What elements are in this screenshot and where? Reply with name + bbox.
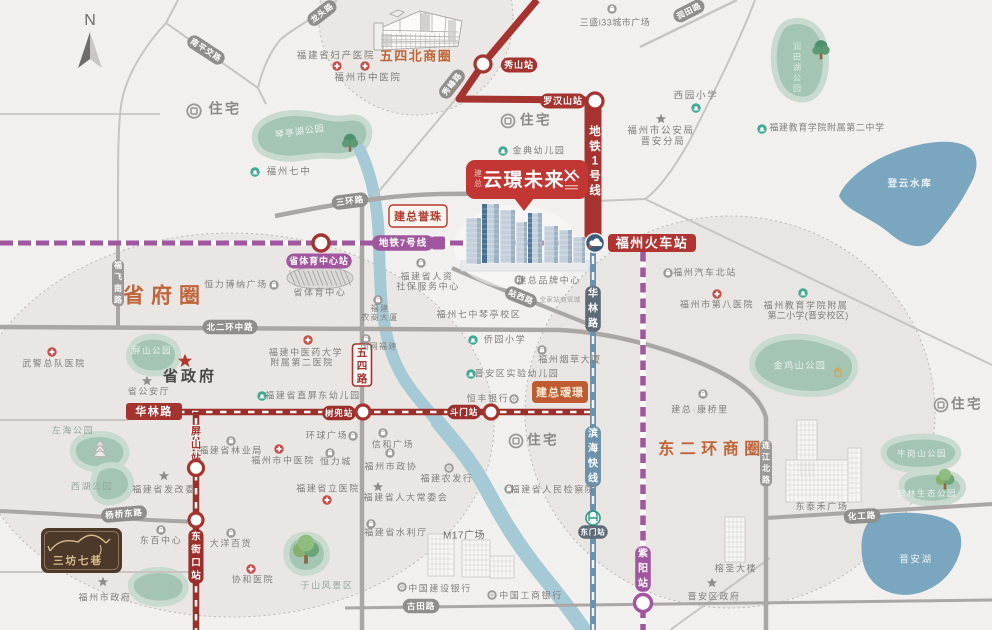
svg-text:中国建设银行: 中国建设银行 (408, 582, 472, 593)
svg-text:华林路: 华林路 (135, 404, 173, 418)
svg-text:福州七中琴亭校区: 福州七中琴亭校区 (437, 308, 522, 319)
svg-text:全家站商贸城: 全家站商贸城 (540, 295, 581, 304)
svg-text:省府圈: 省府圈 (122, 284, 207, 308)
svg-text:路: 路 (588, 317, 599, 330)
svg-text:福建省人大常委会: 福建省人大常委会 (364, 491, 449, 502)
svg-text:省体育中心站: 省体育中心站 (288, 255, 348, 266)
svg-text:西园小学: 西园小学 (674, 90, 719, 102)
svg-text:福建省水利厅: 福建省水利厅 (364, 526, 428, 537)
svg-text:第二小学(晋安校区): 第二小学(晋安校区) (768, 309, 849, 320)
svg-text:侨园小学: 侨园小学 (484, 333, 526, 344)
svg-text:华: 华 (588, 287, 598, 300)
svg-text:恒力博纳广场: 恒力博纳广场 (204, 278, 268, 289)
svg-text:路: 路 (762, 475, 771, 485)
svg-text:N: N (84, 12, 96, 29)
svg-text:福建省人资: 福建省人资 (400, 270, 453, 281)
svg-text:省公安厅: 省公安厅 (128, 385, 170, 396)
svg-text:树兜站: 树兜站 (325, 408, 353, 418)
svg-text:福建省林业局: 福建省林业局 (199, 444, 263, 455)
svg-text:北二环中路: 北二环中路 (206, 322, 253, 332)
svg-text:建总叆璟: 建总叆璟 (536, 385, 584, 399)
svg-text:润: 润 (793, 41, 801, 51)
svg-text:线: 线 (588, 472, 598, 485)
svg-text:建总·康桥里: 建总·康桥里 (671, 403, 729, 414)
svg-text:M17广场: M17广场 (443, 529, 485, 542)
svg-text:乌山历史风貌区: 乌山历史风貌区 (134, 583, 182, 592)
svg-text:福建省立医院: 福建省立医院 (296, 482, 360, 493)
svg-text:金典幼儿园: 金典幼儿园 (512, 144, 565, 155)
svg-text:公: 公 (793, 74, 801, 83)
svg-text:武警总队医院: 武警总队医院 (22, 357, 86, 368)
svg-text:大洋百货: 大洋百货 (210, 537, 252, 548)
svg-text:建: 建 (474, 168, 482, 178)
svg-text:园: 园 (793, 84, 801, 93)
svg-text:东: 东 (191, 531, 201, 543)
svg-text:住宅: 住宅 (527, 432, 559, 448)
svg-text:福州市公安局: 福州市公安局 (627, 125, 694, 137)
svg-text:环球广场: 环球广场 (306, 429, 348, 440)
svg-text:住宅: 住宅 (209, 101, 242, 117)
svg-text:恒力城: 恒力城 (320, 455, 352, 466)
svg-text:四: 四 (357, 360, 368, 372)
svg-text:牛岗山公园: 牛岗山公园 (897, 448, 947, 458)
svg-text:站: 站 (191, 570, 201, 582)
svg-text:南: 南 (114, 283, 122, 293)
svg-text:金鸡山公园: 金鸡山公园 (773, 359, 826, 370)
svg-text:田: 田 (793, 53, 801, 62)
svg-text:晋安区政府: 晋安区政府 (687, 590, 740, 601)
svg-text:晋安分局: 晋安分局 (641, 136, 686, 148)
svg-text:路: 路 (357, 372, 368, 385)
svg-text:福建省发改委: 福建省发改委 (132, 483, 196, 494)
svg-text:飞: 飞 (114, 273, 122, 282)
svg-text:快: 快 (587, 457, 599, 470)
svg-text:阳: 阳 (638, 563, 648, 575)
svg-text:罗汉山站: 罗汉山站 (543, 95, 583, 106)
svg-text:福州市第八医院: 福州市第八医院 (680, 298, 754, 309)
svg-text:林: 林 (588, 302, 599, 315)
svg-text:总: 总 (474, 178, 482, 188)
svg-text:北: 北 (762, 463, 770, 473)
svg-text:福州七中: 福州七中 (267, 166, 312, 178)
svg-text:晋安湖: 晋安湖 (899, 554, 933, 566)
svg-text:附属第二医院: 附属第二医院 (270, 356, 334, 367)
svg-text:秀山站: 秀山站 (503, 59, 534, 70)
svg-text:福州市政协: 福州市政协 (364, 460, 417, 471)
svg-text:福州汽车北站: 福州汽车北站 (673, 266, 737, 277)
svg-text:街: 街 (190, 544, 201, 556)
svg-text:福州火车站: 福州火车站 (615, 235, 689, 250)
svg-text:斗门站: 斗门站 (450, 407, 478, 417)
svg-text:福建省妇产医院: 福建省妇产医院 (297, 50, 375, 62)
svg-text:地铁7号线: 地铁7号线 (379, 237, 427, 249)
svg-text:地: 地 (589, 124, 601, 138)
svg-text:榕圣大楼: 榕圣大楼 (715, 562, 757, 573)
svg-text:福建省人民检察院: 福建省人民检察院 (511, 483, 596, 494)
svg-text:铁: 铁 (589, 139, 601, 153)
svg-text:路: 路 (114, 295, 123, 305)
svg-text:1: 1 (592, 156, 599, 168)
svg-text:国网福建: 国网福建 (360, 341, 398, 351)
svg-text:于山风景区: 于山风景区 (300, 580, 353, 590)
svg-text:屏: 屏 (190, 426, 201, 438)
svg-text:住宅: 住宅 (520, 112, 552, 128)
svg-text:东泰禾广场: 东泰禾广场 (795, 500, 848, 511)
svg-text:五四北商圈: 五四北商圈 (380, 48, 453, 63)
svg-text:福建农发行: 福建农发行 (420, 472, 473, 483)
svg-text:中国工商银行: 中国工商银行 (499, 589, 563, 600)
svg-text:三盛i33城市广场: 三盛i33城市广场 (580, 16, 651, 27)
svg-text:信和广场: 信和广场 (372, 438, 414, 449)
svg-text:西湖公园: 西湖公园 (71, 481, 113, 491)
svg-text:左海公园: 左海公园 (52, 424, 94, 435)
svg-text:屏山公园: 屏山公园 (132, 345, 172, 355)
svg-text:东百中心: 东百中心 (140, 534, 182, 545)
svg-text:省体育中心: 省体育中心 (293, 286, 346, 297)
svg-text:晋安区实验幼儿园: 晋安区实验幼儿园 (475, 367, 560, 378)
svg-text:建总品牌中心: 建总品牌中心 (517, 274, 581, 285)
svg-text:福建中医药大学: 福建中医药大学 (269, 346, 343, 357)
svg-text:古田路: 古田路 (407, 601, 435, 611)
svg-text:云璟未来: 云璟未来 (483, 168, 565, 191)
svg-text:滨: 滨 (588, 427, 598, 440)
svg-text:东门站: 东门站 (581, 526, 606, 536)
svg-text:化工路: 化工路 (848, 510, 877, 521)
svg-text:福: 福 (113, 260, 122, 270)
svg-text:福建: 福建 (371, 303, 390, 313)
svg-text:省政府: 省政府 (162, 367, 217, 385)
svg-text:号: 号 (589, 169, 601, 182)
svg-text:线: 线 (589, 183, 601, 197)
svg-text:恒丰银行: 恒丰银行 (467, 392, 509, 403)
svg-text:福州教育学院附属: 福州教育学院附属 (764, 299, 849, 310)
svg-text:社保服务中心: 社保服务中心 (396, 280, 460, 291)
svg-text:福州市中医院: 福州市中医院 (334, 72, 401, 84)
svg-text:福建省直屏东幼儿园: 福建省直屏东幼儿园 (265, 389, 360, 400)
svg-text:东二环商圈: 东二环商圈 (658, 439, 766, 458)
svg-text:湖: 湖 (793, 63, 801, 72)
svg-text:福州烟草大厦: 福州烟草大厦 (538, 353, 602, 364)
svg-text:口: 口 (191, 558, 201, 569)
svg-text:海: 海 (588, 442, 598, 455)
svg-text:农商大厦: 农商大厦 (361, 312, 399, 322)
svg-text:建总誉珠: 建总誉珠 (394, 209, 442, 223)
svg-text:紫: 紫 (638, 547, 648, 560)
svg-text:登云水库: 登云水库 (887, 178, 933, 190)
svg-text:站: 站 (638, 577, 648, 590)
svg-text:住宅: 住宅 (951, 396, 983, 412)
svg-text:鹤林生态公园: 鹤林生态公园 (897, 488, 957, 498)
svg-text:福州市政府: 福州市政府 (78, 591, 131, 602)
svg-text:福建教育学院附属第二中学: 福建教育学院附属第二中学 (769, 121, 884, 132)
svg-text:福州市中医院: 福州市中医院 (251, 454, 315, 465)
svg-text:三坊七巷: 三坊七巷 (53, 554, 103, 567)
svg-text:协和医院: 协和医院 (232, 573, 274, 584)
